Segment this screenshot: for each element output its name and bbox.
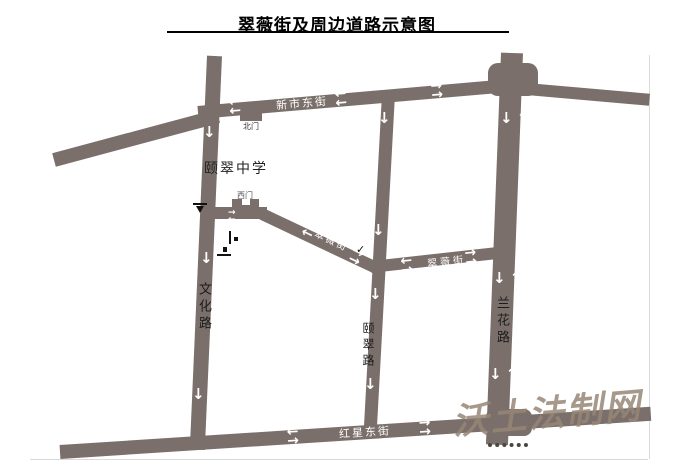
cuiwei-street-east-label: 翠薇街 <box>426 251 466 270</box>
traffic-arrows-wenhua-top: ↓ ↑ <box>203 125 232 140</box>
road-map-canvas: 翠薇街及周边道路示意图 北门 西门 颐翠中学 新市东街 翠薇街 翠薇街 红星东街… <box>0 0 674 476</box>
up-arrow-icon: ↑ <box>209 387 222 402</box>
traffic-arrows-xinshi-mid: ← ← <box>334 90 347 109</box>
down-arrow-icon: ↓ <box>364 377 377 392</box>
traffic-arrows-cuiwei-east-left: ← → <box>400 256 414 275</box>
north-gate-label: 北门 <box>243 121 259 132</box>
traffic-arrows-cuiwei-east-right: → → <box>464 248 478 267</box>
down-arrow-icon: ↓ <box>493 271 506 286</box>
right-arrow-icon: → <box>465 257 478 267</box>
traffic-arrows-wenhua-bottom: ↓ ↑ <box>192 387 221 402</box>
left-arrow-icon: ← <box>229 106 241 116</box>
right-arrow-icon: → <box>287 437 299 447</box>
up-arrow-icon: ↑ <box>381 377 394 392</box>
hongxing-street-label: 红星东街 <box>339 422 392 441</box>
traffic-arrows-yicui-bottom: ↓ ↑ <box>364 377 393 392</box>
traffic-arrows-xinshi-west: ← ← <box>228 98 241 117</box>
wenhua-road-label: 文化路 <box>198 282 211 333</box>
watermark-dots <box>488 443 528 447</box>
frame-bottom-line <box>30 459 648 460</box>
traffic-arrows-cuiwei-stub: → ← <box>228 210 236 224</box>
up-arrow-icon: ↑ <box>517 111 530 126</box>
down-arrow-icon: ↓ <box>489 367 502 382</box>
up-arrow-icon: ↑ <box>389 223 402 238</box>
up-arrow-icon: ↑ <box>386 287 399 302</box>
down-arrow-icon: ↓ <box>203 125 216 140</box>
check-marker-icon: ✓ <box>356 243 365 256</box>
junction-lanhua-xinshi <box>488 63 538 96</box>
up-arrow-icon: ↑ <box>220 125 233 140</box>
down-arrow-icon: ↓ <box>192 387 205 402</box>
lanhua-road-label: 兰花路 <box>496 296 509 347</box>
xinshi-street-label: 新市东街 <box>275 93 328 113</box>
traffic-arrows-xinshi-east: → → <box>430 82 443 101</box>
traffic-arrows-yicui-top: ↓ ↑ <box>378 111 407 126</box>
traffic-arrows-lanhua-mid: ↓ ↑ <box>493 271 522 286</box>
frame-right-line <box>649 55 650 459</box>
road-xinshi-west-segment <box>52 109 220 167</box>
down-arrow-icon: ↓ <box>369 287 382 302</box>
right-arrow-icon: → <box>431 90 443 100</box>
traffic-arrows-hongxing-right: → → <box>418 419 431 438</box>
left-arrow-icon: ← <box>228 217 236 224</box>
down-arrow-icon: ↓ <box>500 111 513 126</box>
school-name-label: 颐翠中学 <box>204 158 268 178</box>
west-gate-label: 西门 <box>237 190 253 201</box>
north-gate-notch <box>240 110 262 121</box>
up-arrow-icon: ↑ <box>510 271 523 286</box>
up-arrow-icon: ↑ <box>395 111 408 126</box>
traffic-arrows-yicui-lower-mid: ↓ ↑ <box>369 287 398 302</box>
traffic-arrows-hongxing-left: ← → <box>286 428 299 447</box>
title-underline <box>167 31 509 33</box>
left-arrow-icon: ← <box>335 98 347 108</box>
down-arrow-icon: ↓ <box>378 111 391 126</box>
down-arrow-icon: ↓ <box>200 251 213 266</box>
right-arrow-icon: → <box>419 428 431 438</box>
up-arrow-icon: ↑ <box>506 367 519 382</box>
traffic-arrows-lanhua-top: ↓ ↑ <box>500 111 529 126</box>
traffic-arrows-lanhua-bottom: ↓ ↑ <box>489 367 518 382</box>
down-arrow-icon: ↓ <box>372 223 385 238</box>
traffic-arrows-yicui-upper-mid: ↓ ↑ <box>372 223 401 238</box>
yicui-road-label: 颐翠路 <box>362 322 374 370</box>
right-arrow-icon: → <box>401 265 414 275</box>
site-watermark: 沃土法制网 <box>450 377 644 445</box>
